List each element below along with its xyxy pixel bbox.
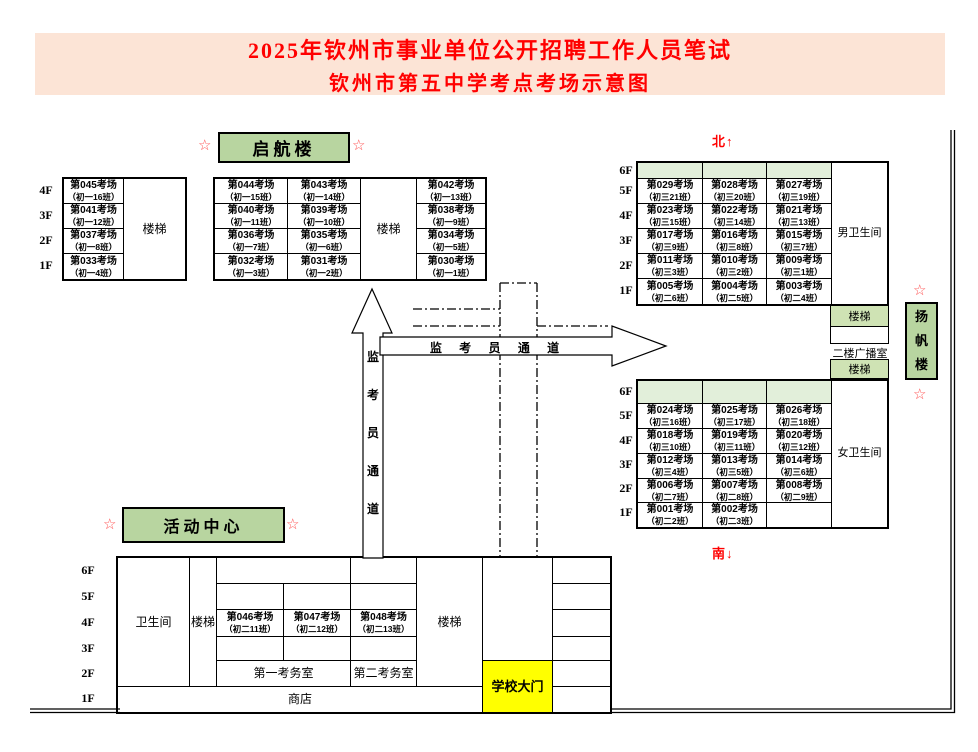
- floor-label: 4F: [34, 183, 58, 198]
- room-cell: 第033考场 （初一4班）: [64, 254, 124, 279]
- room-number: 第038考场: [428, 205, 475, 217]
- room-class: （初三20班）: [709, 192, 761, 202]
- room-cell: 第022考场 （初三14班）: [703, 204, 767, 229]
- empty-cell: [703, 381, 767, 404]
- room-cell: 第029考场 （初三21班）: [638, 179, 703, 204]
- room-cell: 第003考场 （初二4班）: [767, 279, 832, 304]
- room-number: 第029考场: [647, 180, 694, 192]
- room-class: （初一3班）: [227, 268, 274, 278]
- room-class: （初三11班）: [709, 442, 761, 452]
- floor-label: 2F: [34, 233, 58, 248]
- title-banner: 2025年钦州市事业单位公开招聘工作人员笔试 钦州市第五中学考点考场示意图: [35, 33, 945, 95]
- empty-cell: [483, 558, 553, 661]
- room-class: （初二13班）: [358, 624, 410, 634]
- star-icon: ☆: [103, 517, 116, 532]
- empty-cell: [351, 637, 417, 661]
- room-cell: 第007考场 （初二8班）: [703, 479, 767, 503]
- invigilator-passage-horizontal-label: 监 考 员 通 道: [428, 339, 568, 356]
- room-class: （初三10班）: [644, 442, 696, 452]
- room-class: （初二4班）: [775, 293, 822, 303]
- room-cell: 第021考场 （初三13班）: [767, 204, 832, 229]
- room-class: （初一6班）: [300, 242, 347, 252]
- room-number: 第026考场: [776, 405, 823, 417]
- room-cell: 第020考场 （初三12班）: [767, 429, 832, 454]
- room-cell: 第011考场 （初三3班）: [638, 254, 703, 279]
- room-number: 第030考场: [428, 256, 475, 268]
- room-cell: 第005考场 （初二6班）: [638, 279, 703, 304]
- shop-cell: 商店: [118, 687, 483, 712]
- room-number: 第016考场: [711, 230, 758, 242]
- room-class: （初三15班）: [644, 217, 696, 227]
- room-cell: 第025考场 （初三17班）: [703, 404, 767, 429]
- stairs-cell: 楼梯: [830, 305, 889, 327]
- room-cell: 第002考场 （初二3班）: [703, 503, 767, 527]
- room-cell: 第048考场 （初二13班）: [351, 610, 417, 637]
- room-class: （初二3班）: [711, 516, 758, 526]
- room-class: （初二6班）: [646, 293, 693, 303]
- empty-cell: [553, 610, 610, 637]
- room-class: （初三1班）: [775, 267, 822, 277]
- empty-cell: [217, 558, 351, 584]
- room-number: 第023考场: [647, 205, 694, 217]
- floor-label: 4F: [614, 433, 638, 448]
- room-number: 第027考场: [776, 180, 823, 192]
- room-number: 第020考场: [776, 430, 823, 442]
- room-cell: 第034考场 （初一5班）: [417, 229, 485, 254]
- empty-cell: [553, 687, 610, 712]
- room-number: 第047考场: [294, 612, 341, 624]
- empty-cell: [284, 584, 351, 610]
- room-cell: 第032考场 （初一3班）: [215, 254, 288, 279]
- stairs-cell: 楼梯: [830, 359, 889, 379]
- floor-label: 5F: [614, 408, 638, 423]
- room-class: （初一12班）: [68, 217, 120, 227]
- empty-cell: [351, 558, 417, 584]
- empty-cell: [767, 503, 832, 527]
- room-number: 第015考场: [776, 230, 823, 242]
- floor-label: 1F: [76, 691, 100, 706]
- invigilator-passage-vertical-label: 监 考 员 通 道: [365, 338, 381, 528]
- empty-cell: [553, 558, 610, 584]
- room-class: （初三21班）: [644, 192, 696, 202]
- room-class: （初二2班）: [646, 516, 693, 526]
- room-class: （初一9班）: [427, 217, 474, 227]
- room-class: （初三14班）: [709, 217, 761, 227]
- floor-label: 6F: [76, 563, 100, 578]
- room-number: 第022考场: [711, 205, 758, 217]
- empty-cell: [767, 163, 832, 179]
- room-number: 第017考场: [647, 230, 694, 242]
- room-cell: 第009考场 （初三1班）: [767, 254, 832, 279]
- floor-label: 3F: [76, 641, 100, 656]
- room-number: 第010考场: [711, 255, 758, 267]
- empty-cell: [284, 637, 351, 661]
- empty-cell: [830, 326, 889, 344]
- room-class: （初一10班）: [298, 217, 350, 227]
- room-number: 第024考场: [647, 405, 694, 417]
- room-class: （初一8班）: [70, 242, 117, 252]
- room-cell: 第012考场 （初三4班）: [638, 454, 703, 479]
- room-cell: 第035考场 （初一6班）: [288, 229, 361, 254]
- floor-label: 2F: [76, 666, 100, 681]
- room-number: 第042考场: [428, 180, 475, 192]
- floor-label: 6F: [614, 384, 638, 399]
- room-class: （初三6班）: [775, 467, 822, 477]
- exam-office-2-cell: 第二考务室: [351, 661, 417, 687]
- room-number: 第009考场: [776, 255, 823, 267]
- room-class: （初一2班）: [300, 268, 347, 278]
- floor-label: 1F: [614, 283, 638, 298]
- qihang-main-wing-table: 第044考场 （初一15班） 第043考场 （初一14班） 第042考场 （初一…: [213, 177, 487, 281]
- room-cell: 第044考场 （初一15班）: [215, 179, 288, 204]
- room-number: 第036考场: [228, 230, 275, 242]
- empty-cell: [703, 163, 767, 179]
- room-cell: 第038考场 （初一9班）: [417, 204, 485, 229]
- star-icon: ☆: [198, 138, 211, 153]
- room-cell: 第042考场 （初一13班）: [417, 179, 485, 204]
- room-cell: 第016考场 （初三8班）: [703, 229, 767, 254]
- empty-cell: [217, 584, 284, 610]
- stairs-cell: 楼梯: [124, 179, 185, 279]
- star-icon: ☆: [913, 387, 926, 402]
- room-cell: 第023考场 （初三15班）: [638, 204, 703, 229]
- stairs-cell: 楼梯: [361, 179, 417, 279]
- room-class: （初三9班）: [646, 242, 693, 252]
- room-number: 第007考场: [711, 480, 758, 492]
- stairs-cell: 楼梯: [417, 558, 483, 687]
- room-number: 第039考场: [301, 205, 348, 217]
- room-class: （初三5班）: [711, 467, 758, 477]
- room-number: 第034考场: [428, 230, 475, 242]
- exam-office-1-cell: 第一考务室: [217, 661, 351, 687]
- room-class: （初一1班）: [427, 268, 474, 278]
- compass-north: 北↑: [712, 131, 734, 150]
- room-class: （初三17班）: [709, 417, 761, 427]
- room-number: 第035考场: [301, 230, 348, 242]
- room-class: （初一14班）: [298, 192, 350, 202]
- room-number: 第003考场: [776, 281, 823, 293]
- room-class: （初三16班）: [644, 417, 696, 427]
- room-number: 第037考场: [70, 230, 117, 242]
- room-class: （初二8班）: [711, 492, 758, 502]
- title-line-2: 钦州市第五中学考点考场示意图: [329, 67, 651, 96]
- empty-cell: [351, 584, 417, 610]
- room-cell: 第046考场 （初二11班）: [217, 610, 284, 637]
- room-class: （初一11班）: [225, 217, 277, 227]
- room-class: （初三18班）: [773, 417, 825, 427]
- floor-label: 4F: [614, 208, 638, 223]
- room-class: （初一5班）: [427, 242, 474, 252]
- room-number: 第040考场: [228, 205, 275, 217]
- floor-label: 3F: [614, 457, 638, 472]
- empty-cell: [767, 381, 832, 404]
- floor-label: 1F: [614, 505, 638, 520]
- room-class: （初三12班）: [773, 442, 825, 452]
- floor-label: 6F: [614, 163, 638, 178]
- empty-cell: [638, 163, 703, 179]
- floor-label: 3F: [614, 233, 638, 248]
- room-class: （初三2班）: [711, 267, 758, 277]
- room-class: （初二5班）: [711, 293, 758, 303]
- room-number: 第006考场: [647, 480, 694, 492]
- room-class: （初二12班）: [291, 624, 343, 634]
- room-cell: 第028考场 （初三20班）: [703, 179, 767, 204]
- room-class: （初一13班）: [425, 192, 477, 202]
- yangfan-south-table: 女卫生间 第024考场 （初三16班） 第025考场 （初三17班） 第026考…: [636, 379, 889, 529]
- room-number: 第032考场: [228, 256, 275, 268]
- activity-building-table: 卫生间 楼梯 第046考场 （初二11班） 第047考场 （初二12班） 第04…: [116, 556, 612, 714]
- star-icon: ☆: [913, 283, 926, 298]
- room-number: 第044考场: [228, 180, 275, 192]
- room-cell: 第019考场 （初三11班）: [703, 429, 767, 454]
- room-cell: 第047考场 （初二12班）: [284, 610, 351, 637]
- room-number: 第012考场: [647, 455, 694, 467]
- school-gate-cell: 学校大门: [483, 661, 553, 712]
- room-number: 第031考场: [301, 256, 348, 268]
- room-number: 第005考场: [647, 281, 694, 293]
- room-class: （初二9班）: [775, 492, 822, 502]
- female-restroom-cell: 女卫生间: [832, 381, 887, 527]
- floor-label: 5F: [76, 589, 100, 604]
- room-number: 第018考场: [647, 430, 694, 442]
- pedestrian-path-dashed-lines: [413, 283, 608, 556]
- empty-cell: [217, 637, 284, 661]
- room-class: （初二11班）: [224, 624, 276, 634]
- room-class: （初三4班）: [646, 467, 693, 477]
- room-class: （初一7班）: [227, 242, 274, 252]
- room-cell: 第037考场 （初一8班）: [64, 229, 124, 254]
- floor-label: 4F: [76, 615, 100, 630]
- room-cell: 第026考场 （初三18班）: [767, 404, 832, 429]
- room-cell: 第008考场 （初二9班）: [767, 479, 832, 503]
- room-number: 第014考场: [776, 455, 823, 467]
- room-number: 第001考场: [647, 504, 694, 516]
- room-cell: 第031考场 （初一2班）: [288, 254, 361, 279]
- room-cell: 第027考场 （初三19班）: [767, 179, 832, 204]
- room-cell: 第006考场 （初二7班）: [638, 479, 703, 503]
- room-number: 第048考场: [360, 612, 407, 624]
- room-class: （初二7班）: [646, 492, 693, 502]
- floor-label: 5F: [614, 183, 638, 198]
- room-cell: 第030考场 （初一1班）: [417, 254, 485, 279]
- activity-center-label: 活动中心: [122, 507, 285, 543]
- qihang-left-wing-table: 第045考场 （初一16班） 第041考场 （初一12班） 第037考场 （初一…: [62, 177, 187, 281]
- star-icon: ☆: [286, 517, 299, 532]
- male-restroom-cell: 男卫生间: [832, 163, 887, 304]
- room-class: （初一4班）: [70, 268, 117, 278]
- floor-label: 3F: [34, 208, 58, 223]
- yangfan-building-label: 扬 帆 楼: [905, 302, 938, 380]
- restroom-cell: 卫生间: [118, 558, 190, 687]
- room-number: 第025考场: [711, 405, 758, 417]
- yangfan-north-table: 男卫生间 第029考场 （初三21班） 第028考场 （初三20班） 第027考…: [636, 161, 889, 306]
- room-cell: 第043考场 （初一14班）: [288, 179, 361, 204]
- room-class: （初一15班）: [225, 192, 277, 202]
- room-cell: 第036考场 （初一7班）: [215, 229, 288, 254]
- room-number: 第013考场: [711, 455, 758, 467]
- room-number: 第041考场: [70, 205, 117, 217]
- floor-label: 2F: [614, 481, 638, 496]
- stairs-cell: 楼梯: [190, 558, 217, 687]
- room-number: 第019考场: [711, 430, 758, 442]
- room-number: 第045考场: [70, 180, 117, 192]
- room-cell: 第017考场 （初三9班）: [638, 229, 703, 254]
- room-cell: 第004考场 （初二5班）: [703, 279, 767, 304]
- room-cell: 第015考场 （初三7班）: [767, 229, 832, 254]
- room-cell: 第001考场 （初二2班）: [638, 503, 703, 527]
- room-cell: 第040考场 （初一11班）: [215, 204, 288, 229]
- room-cell: 第018考场 （初三10班）: [638, 429, 703, 454]
- star-icon: ☆: [352, 138, 365, 153]
- room-cell: 第013考场 （初三5班）: [703, 454, 767, 479]
- room-class: （初三19班）: [773, 192, 825, 202]
- exam-site-map: 2025年钦州市事业单位公开招聘工作人员笔试 钦州市第五中学考点考场示意图 ☆ …: [0, 0, 978, 752]
- compass-south: 南↓: [712, 543, 734, 562]
- room-cell: 第041考场 （初一12班）: [64, 204, 124, 229]
- room-cell: 第014考场 （初三6班）: [767, 454, 832, 479]
- empty-cell: [553, 637, 610, 661]
- room-number: 第008考场: [776, 480, 823, 492]
- room-number: 第046考场: [227, 612, 274, 624]
- floor-label: 1F: [34, 258, 58, 273]
- room-cell: 第045考场 （初一16班）: [64, 179, 124, 204]
- title-line-1: 2025年钦州市事业单位公开招聘工作人员笔试: [248, 33, 732, 65]
- floor-label: 2F: [614, 258, 638, 273]
- room-number: 第004考场: [711, 281, 758, 293]
- room-class: （初三3班）: [646, 267, 693, 277]
- room-cell: 第024考场 （初三16班）: [638, 404, 703, 429]
- room-number: 第021考场: [776, 205, 823, 217]
- room-class: （初三7班）: [775, 242, 822, 252]
- room-class: （初一16班）: [68, 192, 120, 202]
- empty-cell: [638, 381, 703, 404]
- room-cell: 第010考场 （初三2班）: [703, 254, 767, 279]
- empty-cell: [553, 584, 610, 610]
- room-number: 第043考场: [301, 180, 348, 192]
- room-number: 第033考场: [70, 256, 117, 268]
- room-class: （初三8班）: [711, 242, 758, 252]
- room-cell: 第039考场 （初一10班）: [288, 204, 361, 229]
- room-class: （初三13班）: [773, 217, 825, 227]
- qihang-building-label: 启航楼: [218, 132, 350, 163]
- room-number: 第028考场: [711, 180, 758, 192]
- room-number: 第011考场: [647, 255, 693, 267]
- empty-cell: [553, 661, 610, 687]
- room-number: 第002考场: [711, 504, 758, 516]
